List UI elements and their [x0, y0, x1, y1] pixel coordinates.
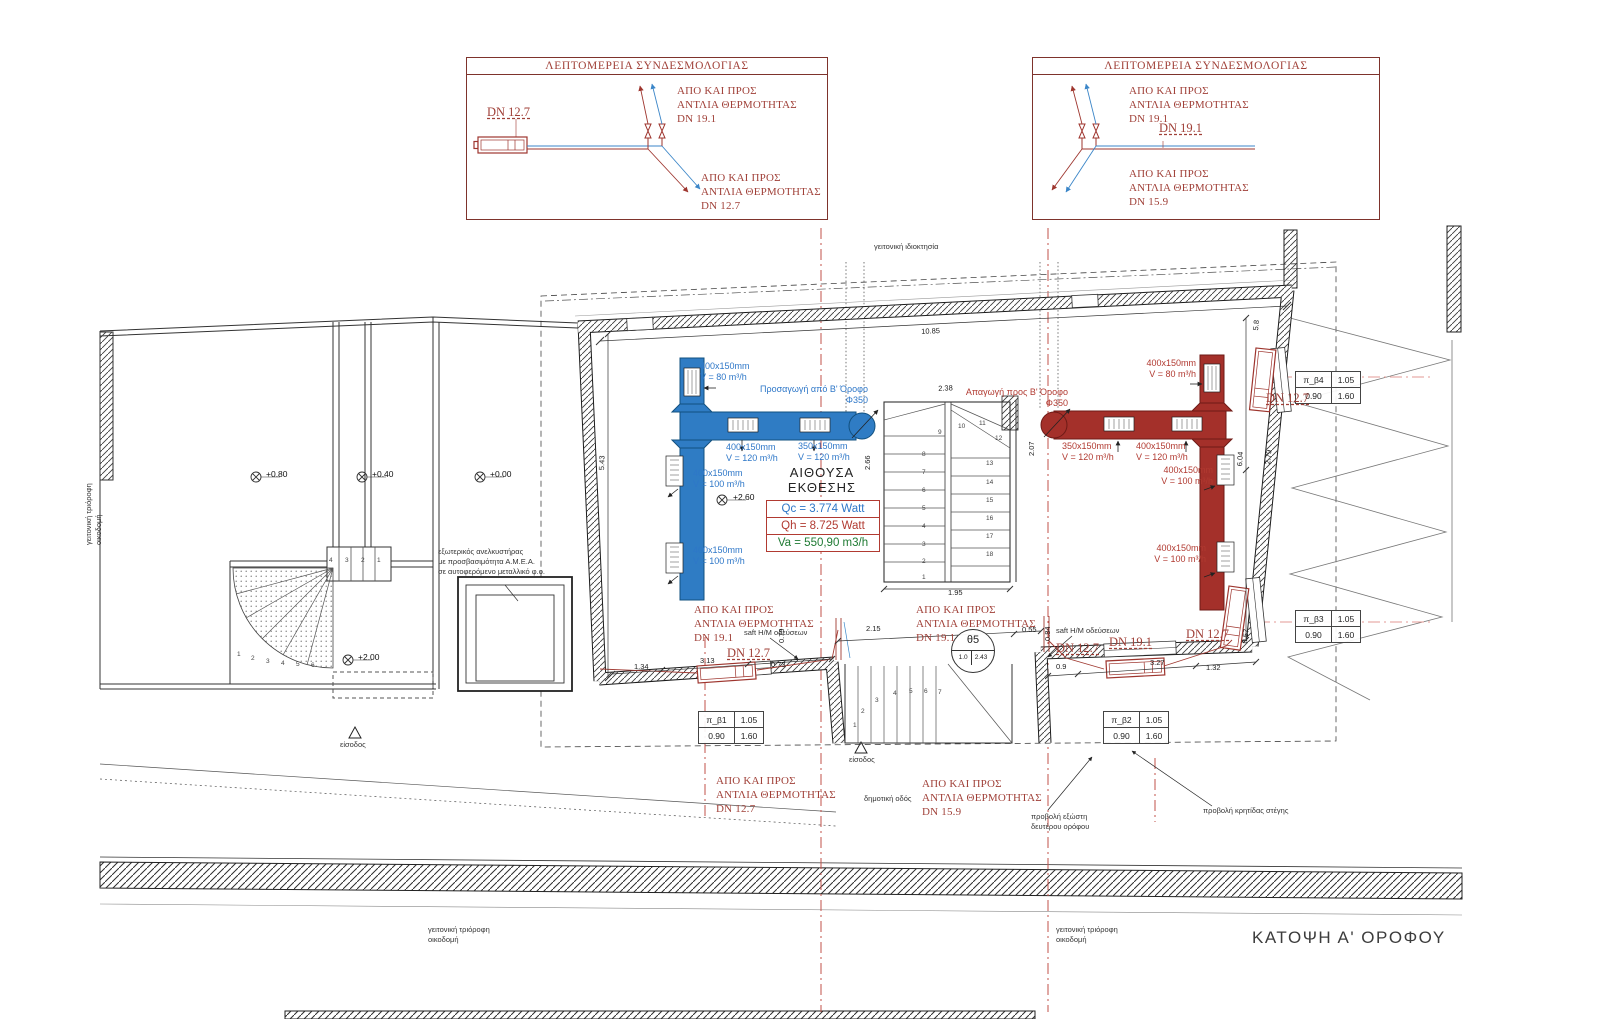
duct-return-120a: 350x150mm V = 120 m³/h [1062, 441, 1114, 463]
stair-num: 16 [986, 516, 993, 523]
stair-num: 4 [893, 691, 897, 698]
hp-label-outside-left: ΑΠΟ ΚΑΙ ΠΡΟΣ ΑΝΤΛΙΑ ΘΕΡΜΟΤΗΤΑΣ DN 12.7 [716, 775, 836, 816]
duct-return-100a: 400x150mm V = 100 m³/h [1145, 465, 1213, 487]
dim-09: 0.9 [1056, 663, 1066, 671]
duct-return-100b: 400x150mm V = 100 m³/h [1138, 543, 1206, 565]
dim-055: 0.55 [1022, 626, 1037, 634]
duct-return-riser: Απαγωγή προς Β' Όροφο Φ350 [950, 387, 1068, 409]
site-neighbor-property: γειτονική ιδιοκτησία [874, 242, 938, 252]
dim-238: 2.38 [938, 384, 953, 392]
projection-balcony: προβολή εξώστη δευτέρου ορόφου [1031, 812, 1089, 832]
dim-266: 2.66 [864, 455, 872, 470]
level-000: +0.00 [490, 470, 512, 479]
stair-num: 11 [979, 421, 986, 428]
dim-084: 0.84 [1044, 626, 1052, 641]
dim-58: 5.8 [1252, 320, 1261, 331]
dn-tag-5: DN 12.7 [1266, 392, 1309, 406]
entrance-label-left: είσοδος [340, 740, 366, 750]
stair-num: 7 [938, 690, 942, 697]
stair-num: 3 [345, 558, 349, 565]
stair-num: 1 [922, 575, 926, 582]
stair-num: 2 [922, 559, 926, 566]
dim-195: 1.95 [948, 589, 963, 597]
stair-num: 1 [377, 558, 381, 565]
duct-supply-branch-80: 400x150mm V = 80 m³/h [700, 361, 750, 383]
drawing-sheet: ΛΕΠΤΟΜΕΡΕΙΑ ΣΥΝΔΕΣΜΟΛΟΓΙΑΣ ΑΠΟ ΚΑΙ ΠΡΟΣ … [0, 0, 1600, 1019]
site-municipal-road: δημοτική οδός [864, 794, 912, 804]
stair-num: 13 [986, 461, 993, 468]
duct-return-120b: 400x150mm V = 120 m³/h [1136, 441, 1188, 463]
dim-073: 0.73 [771, 661, 786, 669]
shaft-label-right: saft H/M οδεύσεων [1056, 626, 1119, 636]
stair-num: 4 [329, 558, 333, 565]
level-040: +0.40 [372, 470, 394, 479]
stair-num: 6 [311, 663, 315, 670]
stair-num: 5 [296, 662, 300, 669]
stair-num: 4 [922, 524, 926, 531]
dim-132: 1.32 [1206, 664, 1221, 672]
dim-215: 2.15 [866, 625, 881, 633]
stair-num: 17 [986, 534, 993, 541]
stair-num: 1 [853, 723, 857, 730]
neighbor-building-bottom-left: γειτονική τριόροφη οικοδομή [428, 925, 490, 945]
detail-left-dn: DN 12.7 [487, 106, 530, 120]
dim-327: 3.27 [1150, 659, 1165, 667]
stair-num: 10 [958, 424, 965, 431]
duct-return-branch-80: 400x150mm V = 80 m³/h [1128, 358, 1196, 380]
hp-label-outside-right: ΑΠΟ ΚΑΙ ΠΡΟΣ ΑΝΤΛΙΑ ΘΕΡΜΟΤΗΤΑΣ DN 15.9 [922, 778, 1042, 819]
entrance-label-main: είσοδος [849, 755, 875, 765]
stair-num: 7 [922, 470, 926, 477]
neighbor-building-left: γειτονική τριόροφη οικοδομή [84, 483, 104, 545]
stair-num: 5 [909, 689, 913, 696]
stair-num: 2 [861, 709, 865, 716]
stair-num: 4 [281, 661, 285, 668]
level-080: +0.80 [266, 470, 288, 479]
stair-num: 18 [986, 552, 993, 559]
dim-279: 2.79 [1264, 449, 1273, 464]
hp-label-inside-left: ΑΠΟ ΚΑΙ ΠΡΟΣ ΑΝΤΛΙΑ ΘΕΡΜΟΤΗΤΑΣ DN 19.1 [694, 604, 814, 645]
stair-num: 1 [237, 652, 241, 659]
level-260: +2.60 [733, 493, 755, 502]
dn-tag-1: DN 12.7 [727, 647, 770, 661]
dn-tag-3: DN 19.1 [1109, 636, 1152, 650]
dim-057: 0.57 [1241, 628, 1250, 643]
duct-supply-100a: 400x150mm V = 100 m³/h [693, 468, 745, 490]
level-200: +2.00 [358, 653, 380, 662]
stair-num: 2 [251, 656, 255, 663]
duct-supply-120b: 350x150mm V = 120 m³/h [798, 441, 850, 463]
dim-543: 5.43 [598, 455, 606, 470]
hp-label-inside-right: ΑΠΟ ΚΑΙ ΠΡΟΣ ΑΝΤΛΙΑ ΘΕΡΜΟΤΗΤΑΣ DN 19.1 [916, 604, 1036, 645]
dim-079: 0.79 [778, 628, 786, 643]
stair-num: 6 [922, 488, 926, 495]
stair-num: 2 [361, 558, 365, 565]
lift-note: εξωτερικός ανελκυστήρας με προσβασιμότητ… [438, 547, 545, 576]
stair-num: 5 [922, 506, 926, 513]
stair-num: 12 [995, 436, 1002, 443]
stair-num: 15 [986, 498, 993, 505]
stair-num: 3 [266, 659, 270, 666]
dim-1085: 10.85 [921, 327, 940, 335]
stair-num: 3 [875, 698, 879, 705]
detail-right-dn: DN 19.1 [1159, 122, 1202, 136]
duct-supply-riser: Προσαγωγή από Β' Όροφο Φ350 [750, 384, 868, 406]
stair-num: 8 [922, 452, 926, 459]
dn-tag-4: DN 12.7 [1186, 628, 1229, 642]
duct-supply-100b: 400x150mm V = 100 m³/h [693, 545, 745, 567]
projection-roof: προβολή κρητίδας στέγης [1203, 806, 1288, 816]
neighbor-building-bottom-center: γειτονική τριόροφη οικοδομή [1056, 925, 1118, 945]
stair-num: 6 [924, 689, 928, 696]
dn-tag-2: DN 12.7 [1056, 642, 1099, 656]
shaft-label-left: saft H/M οδεύσεων [744, 628, 807, 638]
stair-num: 9 [938, 430, 942, 437]
stair-num: 14 [986, 480, 993, 487]
dim-313: 3.13 [700, 657, 715, 665]
dim-604: 6.04 [1236, 451, 1245, 466]
duct-supply-120a: 400x150mm V = 120 m³/h [726, 442, 778, 464]
dim-134: 1.34 [634, 663, 649, 671]
stair-num: 3 [922, 542, 926, 549]
dim-207: 2.07 [1028, 441, 1036, 456]
annotation-layer: DN 12.7DN 19.1400x150mm V = 80 m³/hΠροσα… [0, 0, 1600, 1019]
